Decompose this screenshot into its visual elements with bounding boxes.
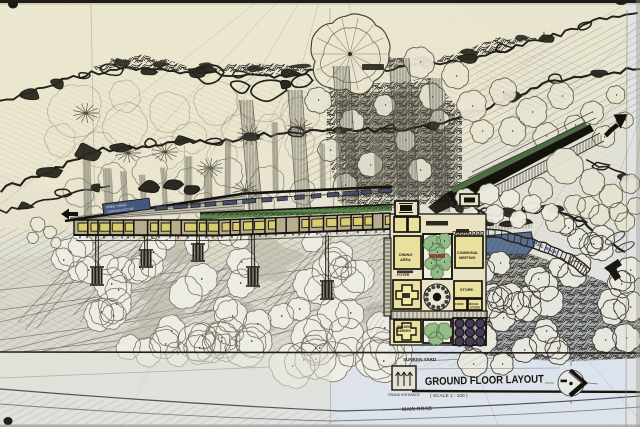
svg-text:GRAND ENTRANCE: GRAND ENTRANCE bbox=[388, 393, 421, 397]
svg-text:GROUND FLOOR LAYOUT: GROUND FLOOR LAYOUT bbox=[425, 374, 544, 388]
svg-text:( SCALE 1 : 100 ): ( SCALE 1 : 100 ) bbox=[430, 393, 468, 399]
svg-text:STORE.: STORE. bbox=[460, 288, 474, 292]
svg-text:GARDEN: GARDEN bbox=[397, 329, 412, 333]
svg-text:AREA: AREA bbox=[400, 258, 411, 262]
svg-text:STORE: STORE bbox=[470, 306, 480, 310]
svg-text:SUNKEN YARD: SUNKEN YARD bbox=[403, 357, 437, 362]
svg-text:DINING: DINING bbox=[399, 253, 412, 257]
svg-text:MAIN ROAD: MAIN ROAD bbox=[402, 406, 432, 413]
svg-text:FOYER: FOYER bbox=[397, 273, 410, 277]
svg-text:MEETING: MEETING bbox=[459, 256, 476, 260]
svg-text:COMMUNAL: COMMUNAL bbox=[457, 251, 479, 255]
svg-text:FOOD: FOOD bbox=[455, 302, 464, 306]
